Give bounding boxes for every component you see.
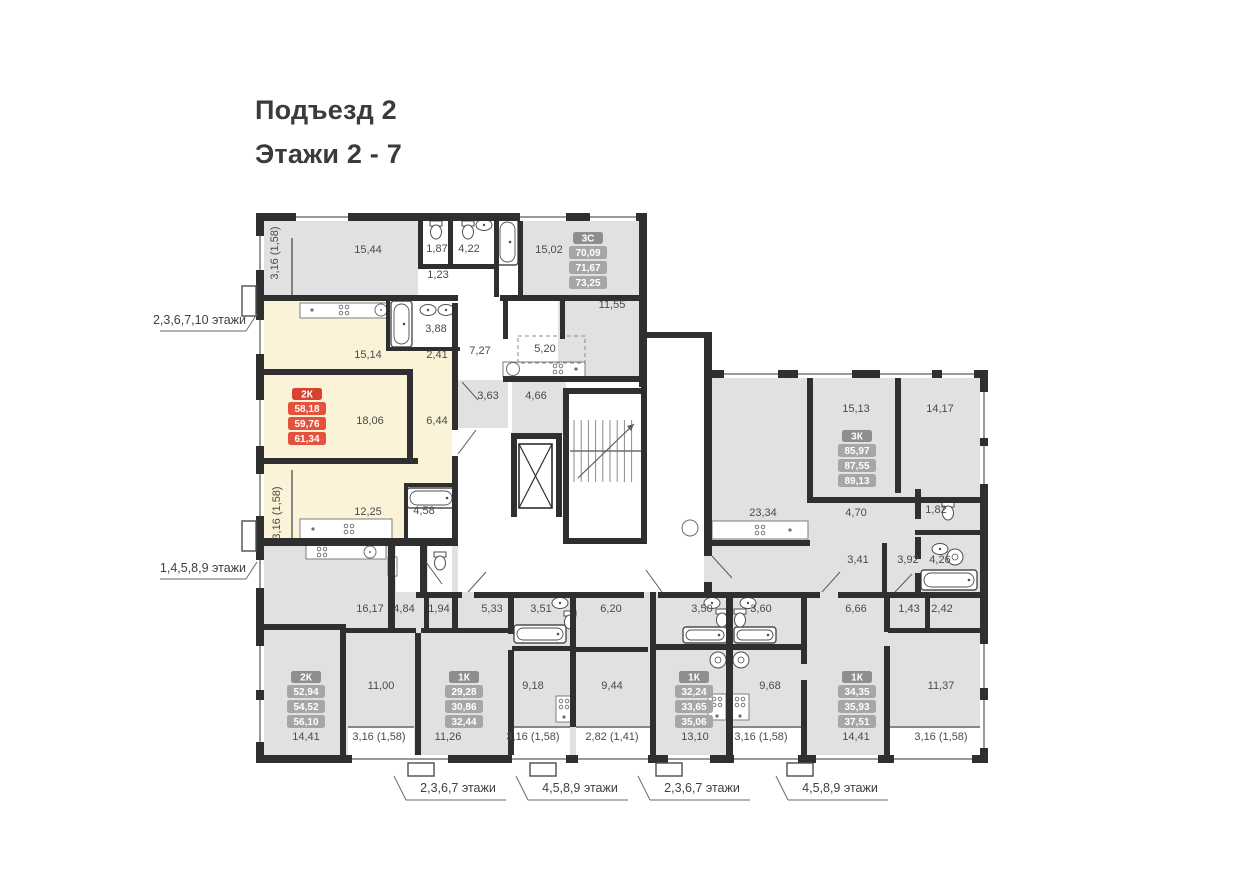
room-area-label: 2,41	[426, 349, 447, 361]
bathtub-icon	[497, 219, 518, 265]
apartment-area-value: 89,13	[844, 476, 869, 487]
apartment-area-value: 32,24	[681, 687, 706, 698]
room-area-label: 15,02	[535, 244, 563, 256]
apartment-area-value: 32,44	[451, 717, 476, 728]
room-area-label: 11,26	[435, 731, 462, 743]
room-area-label: 4,84	[393, 603, 414, 615]
floor-label-bottom: 4,5,8,9 этажи	[802, 781, 878, 795]
room-area-label: 3,41	[847, 554, 868, 566]
room-area-label: 3,16 (1,58)	[914, 731, 967, 743]
apartment-area-value: 71,67	[575, 263, 600, 274]
bathtub-icon	[514, 625, 566, 643]
room-area-label: 4,58	[413, 505, 434, 517]
room-area-label: 4,26	[929, 554, 950, 566]
sink-icon	[476, 220, 492, 231]
apartment-area-value: 56,10	[293, 717, 318, 728]
sink-icon	[932, 544, 948, 555]
toilet-icon	[462, 221, 474, 239]
room-area-label: 15,14	[354, 349, 382, 361]
apartment-type-label: 1К	[851, 673, 864, 684]
shower-icon	[710, 652, 726, 668]
elevator	[519, 444, 552, 508]
room-area-label: 11,37	[928, 680, 955, 692]
floor-label-bottom: 2,3,6,7 этажи	[664, 781, 740, 795]
toilet-icon	[734, 609, 746, 627]
floor-plan-drawing: 3,16 (1,58)15,441,874,221,2315,0211,553,…	[0, 0, 1238, 877]
room-area-label: 4,66	[525, 390, 546, 402]
room-area-label: 3,16 (1,58)	[506, 731, 559, 743]
room-area-label: 4,22	[458, 243, 479, 255]
sink-icon	[420, 305, 436, 316]
room-area-label: 3,88	[425, 323, 446, 335]
apartment-area-value: 29,28	[451, 687, 476, 698]
apartment-area-value: 35,93	[844, 702, 869, 713]
staircase	[570, 420, 641, 482]
room-area-label: 3,92	[897, 554, 918, 566]
shower-icon	[733, 652, 749, 668]
apartment-area-value: 58,18	[294, 404, 319, 415]
room-area-label: 4,70	[845, 507, 866, 519]
room-area-label: 3,16 (1,58)	[734, 731, 787, 743]
room-area-label: 1,23	[427, 269, 448, 281]
room-area-label: 6,20	[600, 603, 621, 615]
room-area-label: 1,87	[426, 243, 447, 255]
apartment-type-label: 1К	[458, 673, 471, 684]
room-area-label: 18,06	[356, 415, 384, 427]
floor-plan-page: Подъезд 2 Этажи 2 - 7 3,16 (1,58)15,441,…	[0, 0, 1238, 877]
room-area-label: 1,94	[428, 603, 449, 615]
room-area-label: 11,55	[599, 299, 626, 311]
bathtub-icon	[391, 301, 412, 347]
bathtub-icon	[683, 627, 727, 643]
bathtub-icon	[734, 627, 776, 643]
apartment-area-value: 37,51	[844, 717, 869, 728]
room-area-label: 14,17	[926, 403, 954, 415]
room-area-label: 15,44	[354, 244, 382, 256]
room-area-label: 9,18	[522, 680, 543, 692]
apartment-area-value: 52,94	[293, 687, 318, 698]
floor-label-bottom: 4,5,8,9 этажи	[542, 781, 618, 795]
apartment-area-value: 87,55	[844, 461, 869, 472]
room-area-label: 3,16 (1,58)	[271, 486, 283, 539]
apartment-area-value: 35,06	[681, 717, 706, 728]
room-area-label: 23,34	[749, 507, 777, 519]
room-area-label: 9,44	[601, 680, 622, 692]
room-area-label: 3,60	[750, 603, 771, 615]
apartment-area-value: 70,09	[575, 248, 600, 259]
apartment-type-label: 2К	[301, 390, 314, 401]
room-area-label: 1,82	[925, 504, 946, 516]
room-area-label: 3,51	[530, 603, 551, 615]
room-area-label: 12,25	[354, 506, 382, 518]
room-area-label: 11,00	[368, 680, 395, 692]
floor-label-left: 2,3,6,7,10 этажи	[153, 313, 246, 327]
apartment-area-value: 33,65	[681, 702, 706, 713]
room-area-label: 14,41	[292, 731, 320, 743]
sink-icon	[438, 305, 454, 316]
room-area-label: 3,16 (1,58)	[269, 226, 281, 279]
apartment-type-label: 3К	[851, 432, 864, 443]
apartment-area-value: 61,34	[294, 434, 319, 445]
sink-icon	[552, 598, 568, 609]
room-area-label: 15,13	[842, 403, 870, 415]
room-area-label: 16,17	[356, 603, 384, 615]
floor-label-left: 1,4,5,8,9 этажи	[160, 561, 246, 575]
bathtub-icon	[921, 570, 977, 590]
apartment-type-label: 1К	[688, 673, 701, 684]
room-area-label: 5,20	[534, 343, 555, 355]
apartment-type-label: 2К	[300, 673, 313, 684]
room-area-label: 3,50	[691, 603, 712, 615]
apartment-type-label: 3С	[582, 234, 595, 245]
apartment-area-value: 85,97	[844, 446, 869, 457]
apartment-area-value: 34,35	[844, 687, 869, 698]
room-area-label: 6,44	[426, 415, 447, 427]
room-area-label: 2,82 (1,41)	[585, 731, 638, 743]
apartment-area-value: 59,76	[294, 419, 319, 430]
toilet-icon	[430, 221, 442, 239]
apartment-area-value: 54,52	[293, 702, 318, 713]
room-area-label: 13,10	[681, 731, 709, 743]
room-area-label: 2,42	[931, 603, 952, 615]
room-area-label: 3,63	[477, 390, 498, 402]
room-area-label: 7,27	[469, 345, 490, 357]
room-area-label: 6,66	[845, 603, 866, 615]
room-area-label: 3,16 (1,58)	[352, 731, 405, 743]
room-area-label: 5,33	[481, 603, 502, 615]
floor-label-bottom: 2,3,6,7 этажи	[420, 781, 496, 795]
toilet-icon	[434, 552, 446, 570]
room-area-label: 9,68	[759, 680, 780, 692]
room-area-label: 14,41	[842, 731, 870, 743]
apartment-area-value: 73,25	[575, 278, 600, 289]
room-area-label: 1,43	[898, 603, 919, 615]
apartment-area-value: 30,86	[451, 702, 476, 713]
